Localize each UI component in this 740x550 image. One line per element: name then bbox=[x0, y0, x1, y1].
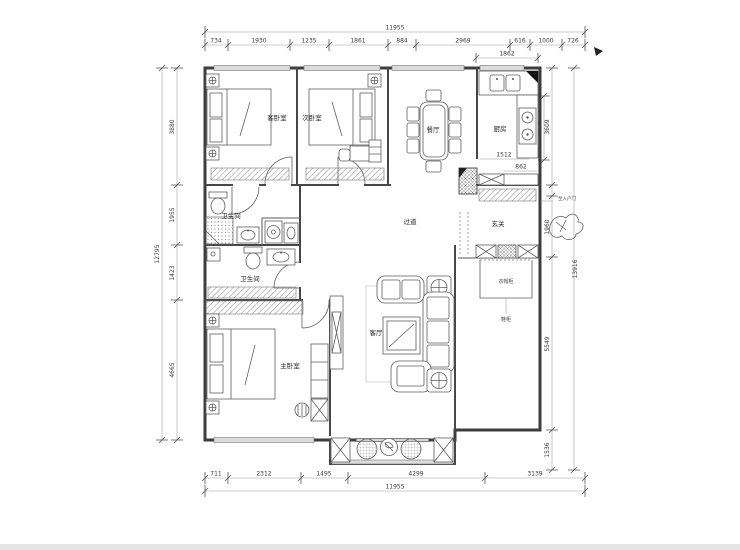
master-bedroom-furniture bbox=[206, 314, 328, 421]
shelf bbox=[369, 140, 381, 162]
dim-label: 4299 bbox=[408, 471, 423, 478]
radiator bbox=[211, 168, 289, 180]
entry-furniture: 衣帽柜 鞋柜 至入户门 bbox=[476, 195, 583, 323]
dim-total-left: 12795 bbox=[154, 244, 161, 263]
room-label-master-bedroom: 主卧室 bbox=[280, 361, 300, 370]
dim-label: 616 bbox=[514, 38, 526, 45]
living-room-furniture bbox=[330, 276, 454, 392]
shower bbox=[206, 217, 233, 244]
desk-chair bbox=[339, 149, 350, 161]
dim-label: 4665 bbox=[169, 362, 176, 377]
sink-bowl bbox=[490, 75, 504, 91]
dim-chain-bottom: 711 2312 1495 4299 3139 11955 bbox=[202, 471, 588, 498]
balcony-furniture bbox=[331, 438, 453, 462]
floor-plan-drawing: 734 1930 1235 1861 884 2969 616 1000 726… bbox=[0, 0, 740, 550]
dim-label: 3609 bbox=[544, 119, 551, 134]
radiator bbox=[208, 287, 296, 298]
window bbox=[392, 66, 464, 71]
dim-label: 5549 bbox=[544, 336, 551, 351]
dim-label: 1861 bbox=[350, 38, 365, 45]
dim-chain-left: 3880 1955 1423 4665 12795 bbox=[154, 65, 183, 443]
entry-door-sketch bbox=[550, 214, 583, 239]
window bbox=[480, 66, 524, 71]
stove bbox=[519, 108, 536, 144]
shoe-cabinet-label: 鞋柜 bbox=[501, 316, 511, 323]
laundry-sink bbox=[284, 223, 298, 243]
bathroom-lower-furniture bbox=[207, 247, 295, 269]
dim-chain-right: 3609 1960 5549 1536 13916 2476 bbox=[536, 65, 580, 473]
radiator bbox=[479, 189, 536, 201]
toilet bbox=[244, 247, 262, 253]
room-label-corridor: 过道 bbox=[404, 217, 418, 226]
dim-label: 1423 bbox=[169, 265, 176, 280]
dim-label: 3880 bbox=[169, 119, 176, 134]
dim-total-right: 13916 bbox=[572, 259, 579, 278]
bathroom-lower-door bbox=[274, 262, 300, 288]
dim-kitchen-lower: 862 bbox=[515, 164, 527, 171]
coat-cabinet-label: 衣帽柜 bbox=[498, 278, 513, 285]
dim-label: 884 bbox=[396, 38, 408, 45]
vanity bbox=[267, 249, 295, 265]
room-label-entry: 玄关 bbox=[492, 219, 506, 228]
master-wardrobe bbox=[206, 301, 303, 314]
dim-chain-top: 734 1930 1235 1861 884 2969 616 1000 726… bbox=[202, 25, 603, 64]
dresser bbox=[311, 344, 328, 398]
dim-label: 1000 bbox=[538, 38, 553, 45]
dim-label: 1235 bbox=[301, 38, 316, 45]
window bbox=[214, 438, 314, 443]
window bbox=[304, 66, 380, 71]
room-label-second-bedroom: 次卧室 bbox=[302, 113, 322, 122]
dim-label: 2969 bbox=[455, 38, 470, 45]
room-label-living: 客厅 bbox=[370, 328, 384, 337]
dim-kitchen-counter: 1512 bbox=[496, 152, 511, 159]
toilet bbox=[209, 192, 227, 198]
floor-plan-page: 734 1930 1235 1861 884 2969 616 1000 726… bbox=[0, 0, 740, 550]
dim-kitchen-width: 1862 bbox=[499, 51, 514, 58]
dim-total-bottom: 11955 bbox=[385, 484, 404, 491]
vanity bbox=[237, 227, 259, 243]
kitchen-counter-bottom bbox=[479, 174, 538, 185]
wicker-chair bbox=[401, 439, 421, 459]
entry-note-label: 至入户门 bbox=[558, 195, 576, 202]
dim-label: 1495 bbox=[316, 471, 331, 478]
dim-label: 726 bbox=[567, 38, 579, 45]
room-label-guest-bedroom: 客卧室 bbox=[267, 113, 287, 122]
sink-bowl bbox=[506, 75, 520, 91]
dim-label: 734 bbox=[210, 38, 222, 45]
room-label-kitchen: 厨房 bbox=[494, 124, 507, 133]
dim-label: 711 bbox=[210, 471, 222, 478]
black-triangle-marker bbox=[594, 47, 603, 56]
dim-label: 1955 bbox=[169, 207, 176, 222]
mop-sink bbox=[207, 248, 220, 261]
bottom-edge-strip bbox=[0, 544, 740, 550]
room-label-dining: 餐厅 bbox=[427, 125, 441, 134]
window bbox=[214, 66, 290, 71]
bathroom-upper-door bbox=[232, 187, 259, 214]
washing-machine bbox=[265, 221, 282, 243]
dim-label: 1536 bbox=[544, 442, 551, 457]
dim-total-top: 11955 bbox=[385, 25, 404, 32]
master-bedroom-door bbox=[302, 300, 329, 328]
cabinet-unit bbox=[498, 245, 516, 258]
wicker-chair bbox=[357, 439, 377, 459]
dim-label: 3139 bbox=[527, 471, 542, 478]
radiator bbox=[306, 168, 384, 180]
room-label-bathroom-lower: 卫生间 bbox=[240, 274, 260, 283]
room-label-bathroom-upper: 卫生间 bbox=[221, 211, 241, 220]
guest-bedroom-furniture bbox=[206, 74, 271, 160]
dim-label: 1930 bbox=[251, 38, 266, 45]
dim-label: 2312 bbox=[256, 471, 271, 478]
